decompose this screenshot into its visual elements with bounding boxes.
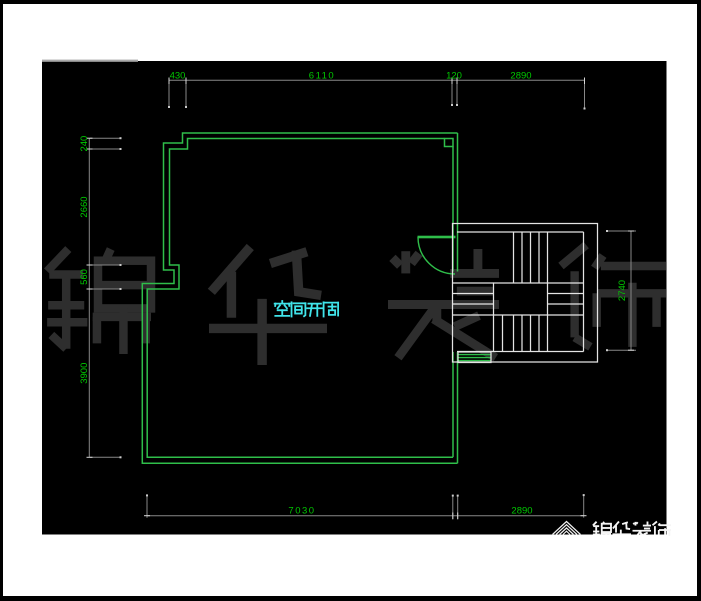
svg-text:2740: 2740: [617, 280, 628, 301]
svg-text:3900: 3900: [79, 363, 90, 384]
svg-text:2660: 2660: [79, 196, 90, 217]
svg-text:6110: 6110: [309, 71, 335, 82]
svg-text:7030: 7030: [288, 506, 315, 517]
svg-text:430: 430: [170, 71, 186, 82]
svg-text:240: 240: [79, 136, 90, 152]
svg-text:2890: 2890: [511, 506, 532, 517]
svg-text:120: 120: [446, 71, 462, 82]
svg-text:2890: 2890: [510, 71, 531, 82]
svg-text:560: 560: [79, 269, 90, 285]
